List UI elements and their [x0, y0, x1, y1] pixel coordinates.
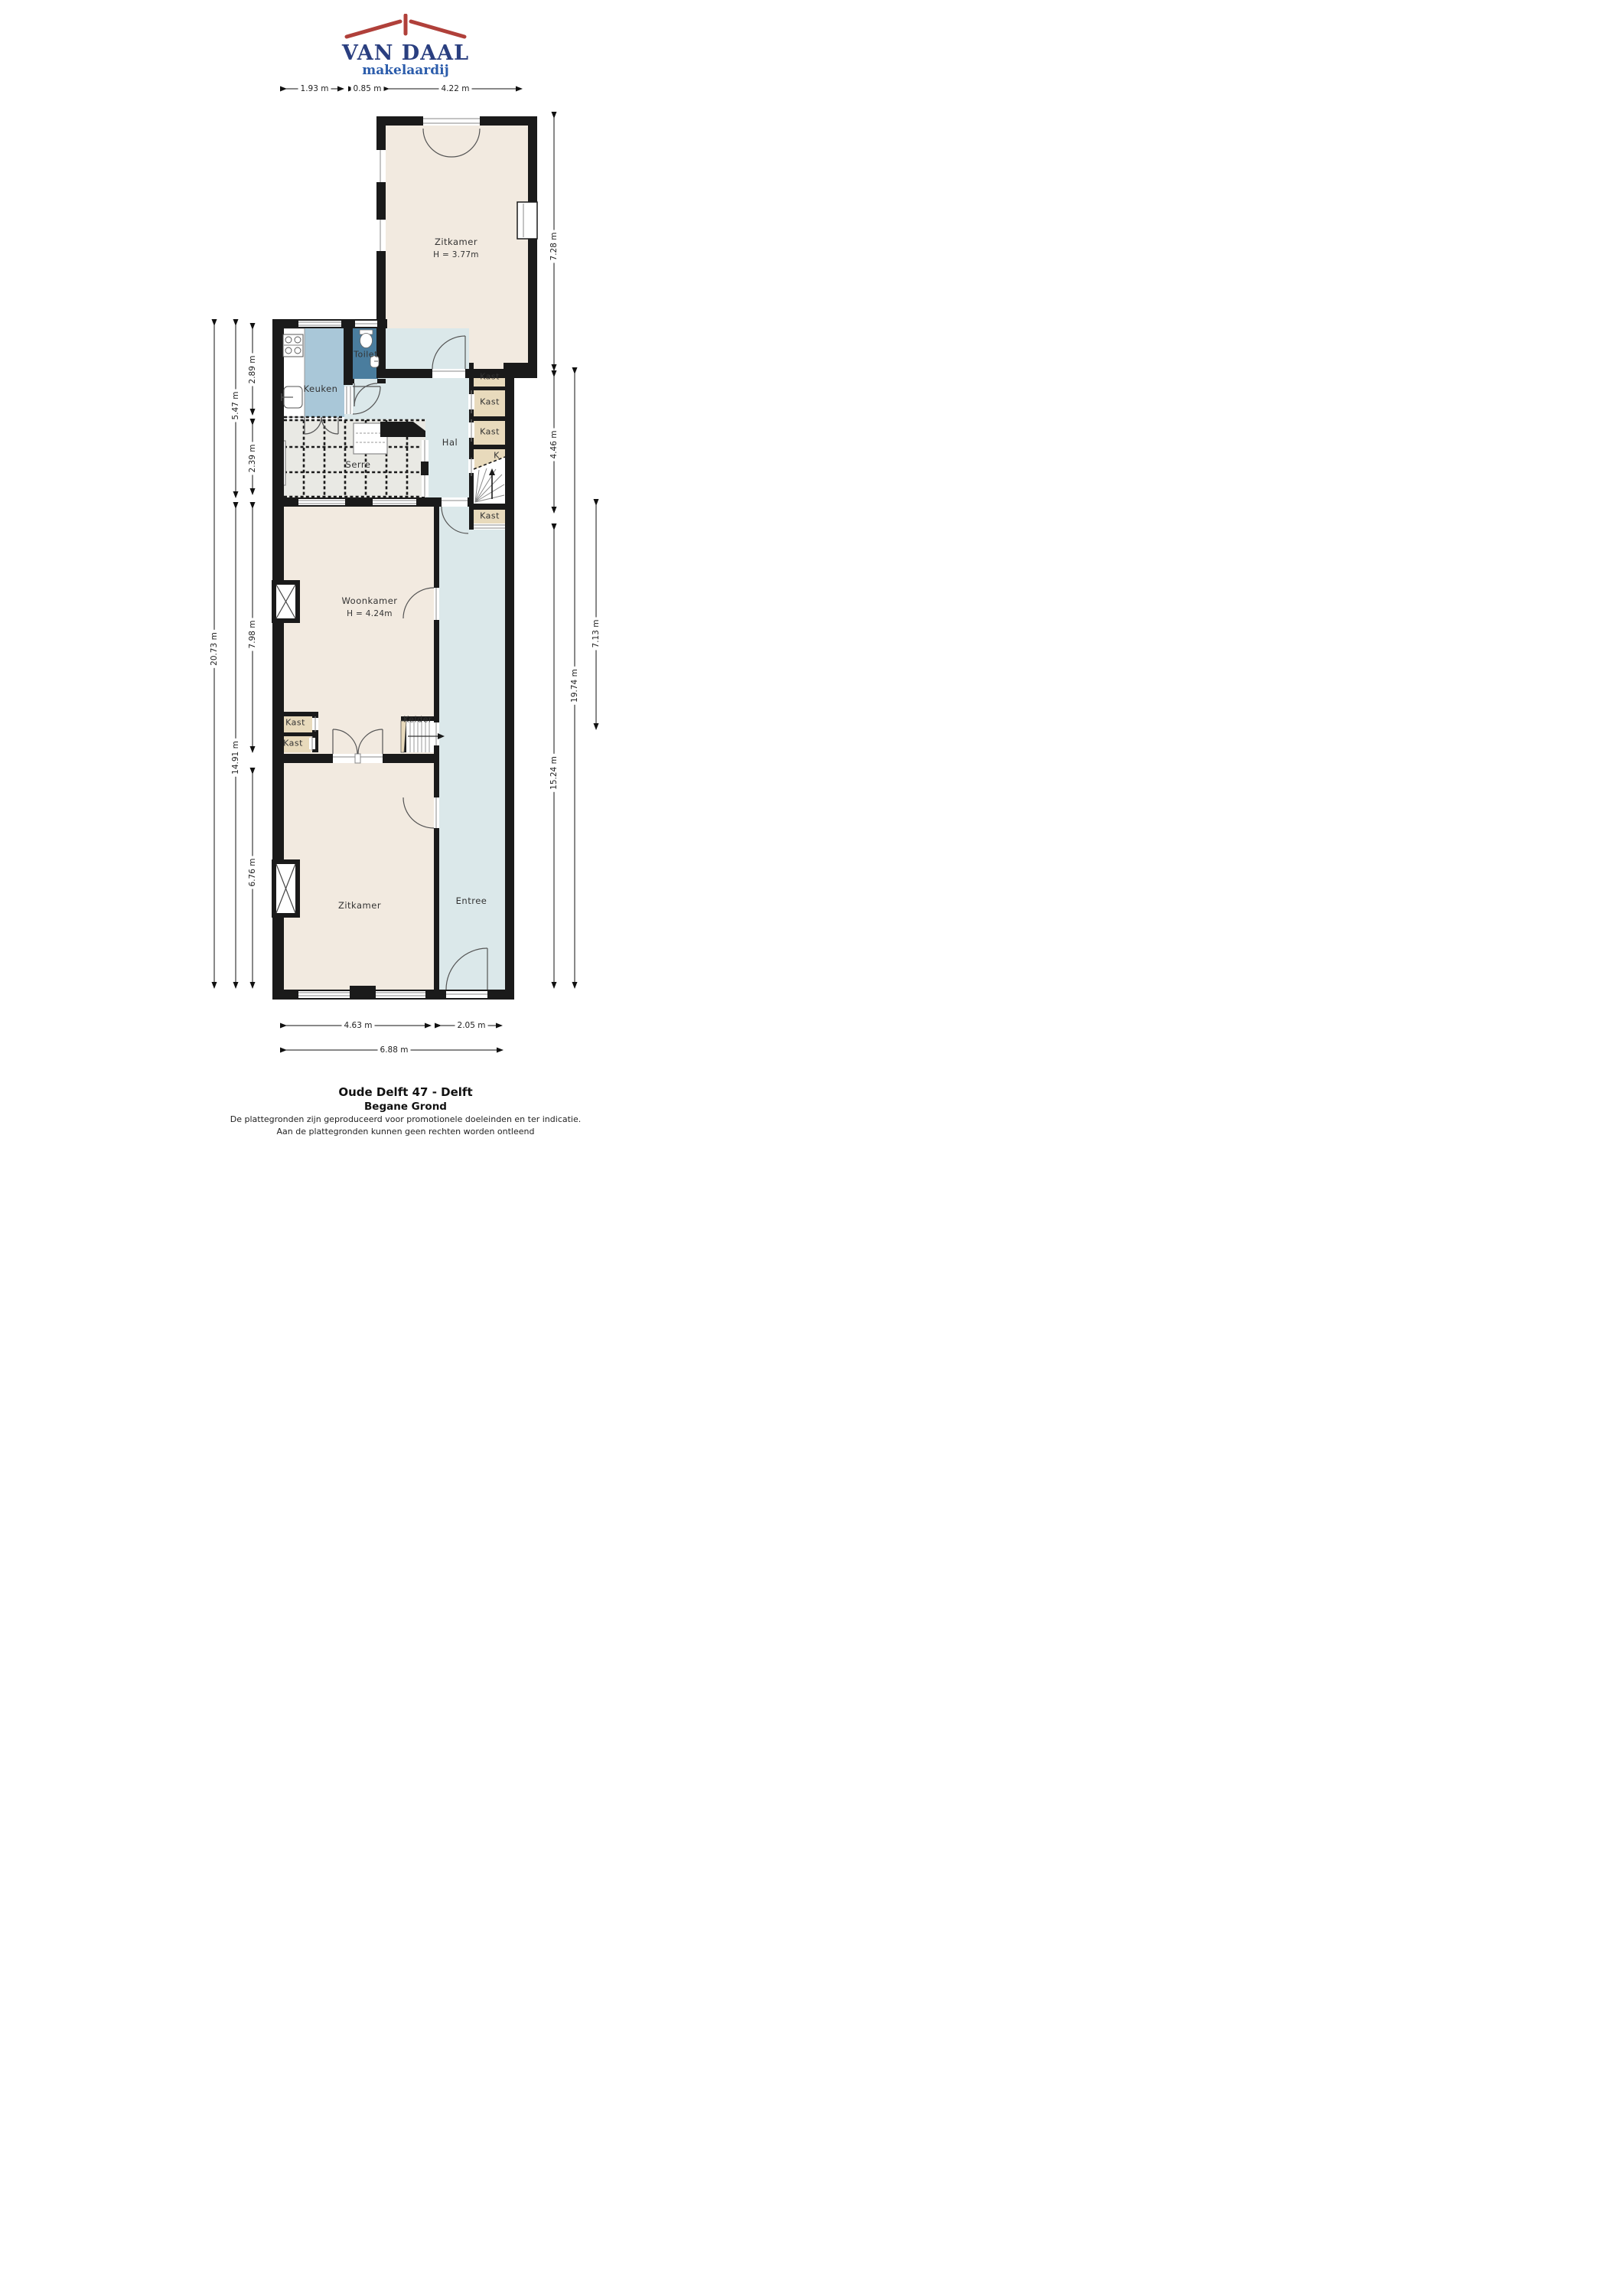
room-label-kast-1: Kast — [480, 372, 500, 382]
room-height-woonkamer: H = 4.24m — [341, 609, 397, 618]
dim-205: 2.05 m — [455, 1021, 488, 1030]
disclaimer-line-1: De plattegronden zijn geproduceerd voor … — [0, 1114, 811, 1126]
room-height-zitkamer-boven: H = 3.77m — [433, 250, 479, 259]
room-label-zitkamer: Zitkamer — [338, 900, 381, 911]
dim-2073: 20.73 m — [210, 630, 219, 668]
dim-798: 7.98 m — [248, 618, 257, 651]
room-label-kast-3: Kast — [480, 427, 500, 437]
floorplan-drawing — [0, 0, 811, 1148]
room-label-kast-5: Kast — [285, 718, 305, 728]
room-label-woonkamer: WoonkamerH = 4.24m — [341, 595, 397, 618]
dim-1491: 14.91 m — [231, 739, 240, 777]
dim-1524: 15.24 m — [549, 754, 559, 792]
plan-floor-name: Begane Grond — [0, 1101, 811, 1114]
dim-713: 7.13 m — [592, 618, 601, 651]
plan-title: Oude Delft 47 - Delft — [0, 1085, 811, 1101]
room-label-serre: Serre — [346, 459, 371, 470]
dim-085: 0.85 m — [351, 84, 384, 93]
room-label-kast-4: Kast — [480, 511, 500, 521]
stove-icon — [283, 334, 303, 357]
dim-676: 6.76 m — [248, 856, 257, 889]
sink-icon — [282, 386, 302, 408]
room-label-kast-6: Kast — [283, 739, 303, 748]
dim-547: 5.47 m — [231, 390, 240, 422]
floorplan-page: VAN DAAL makelaardij — [0, 0, 811, 1148]
room-label-toilet: Toilet — [354, 350, 378, 360]
dim-289: 2.89 m — [248, 354, 257, 386]
dim-688: 6.88 m — [378, 1045, 411, 1055]
dim-1974: 19.74 m — [570, 667, 579, 705]
room-fills — [277, 124, 530, 990]
room-label-hal: Hal — [442, 437, 458, 448]
disclaimer-line-2: Aan de plattegronden kunnen geen rechten… — [0, 1126, 811, 1138]
dim-463: 4.63 m — [342, 1021, 375, 1030]
footer: Oude Delft 47 - Delft Begane Grond De pl… — [0, 1085, 811, 1138]
room-label-keuken: Keuken — [304, 383, 338, 394]
room-label-k: K — [494, 451, 500, 461]
room-label-kast-2: Kast — [480, 397, 500, 407]
room-label-kelder: Kelder — [403, 715, 432, 725]
dim-193: 1.93 m — [298, 84, 331, 93]
dim-728: 7.28 m — [549, 230, 559, 263]
dim-422: 4.22 m — [439, 84, 472, 93]
dim-446: 4.46 m — [549, 429, 559, 461]
room-label-entree: Entree — [456, 895, 487, 906]
toilet-icon — [360, 330, 373, 348]
dim-239: 2.39 m — [248, 442, 257, 475]
room-label-zitkamer-boven: ZitkamerH = 3.77m — [433, 236, 479, 259]
